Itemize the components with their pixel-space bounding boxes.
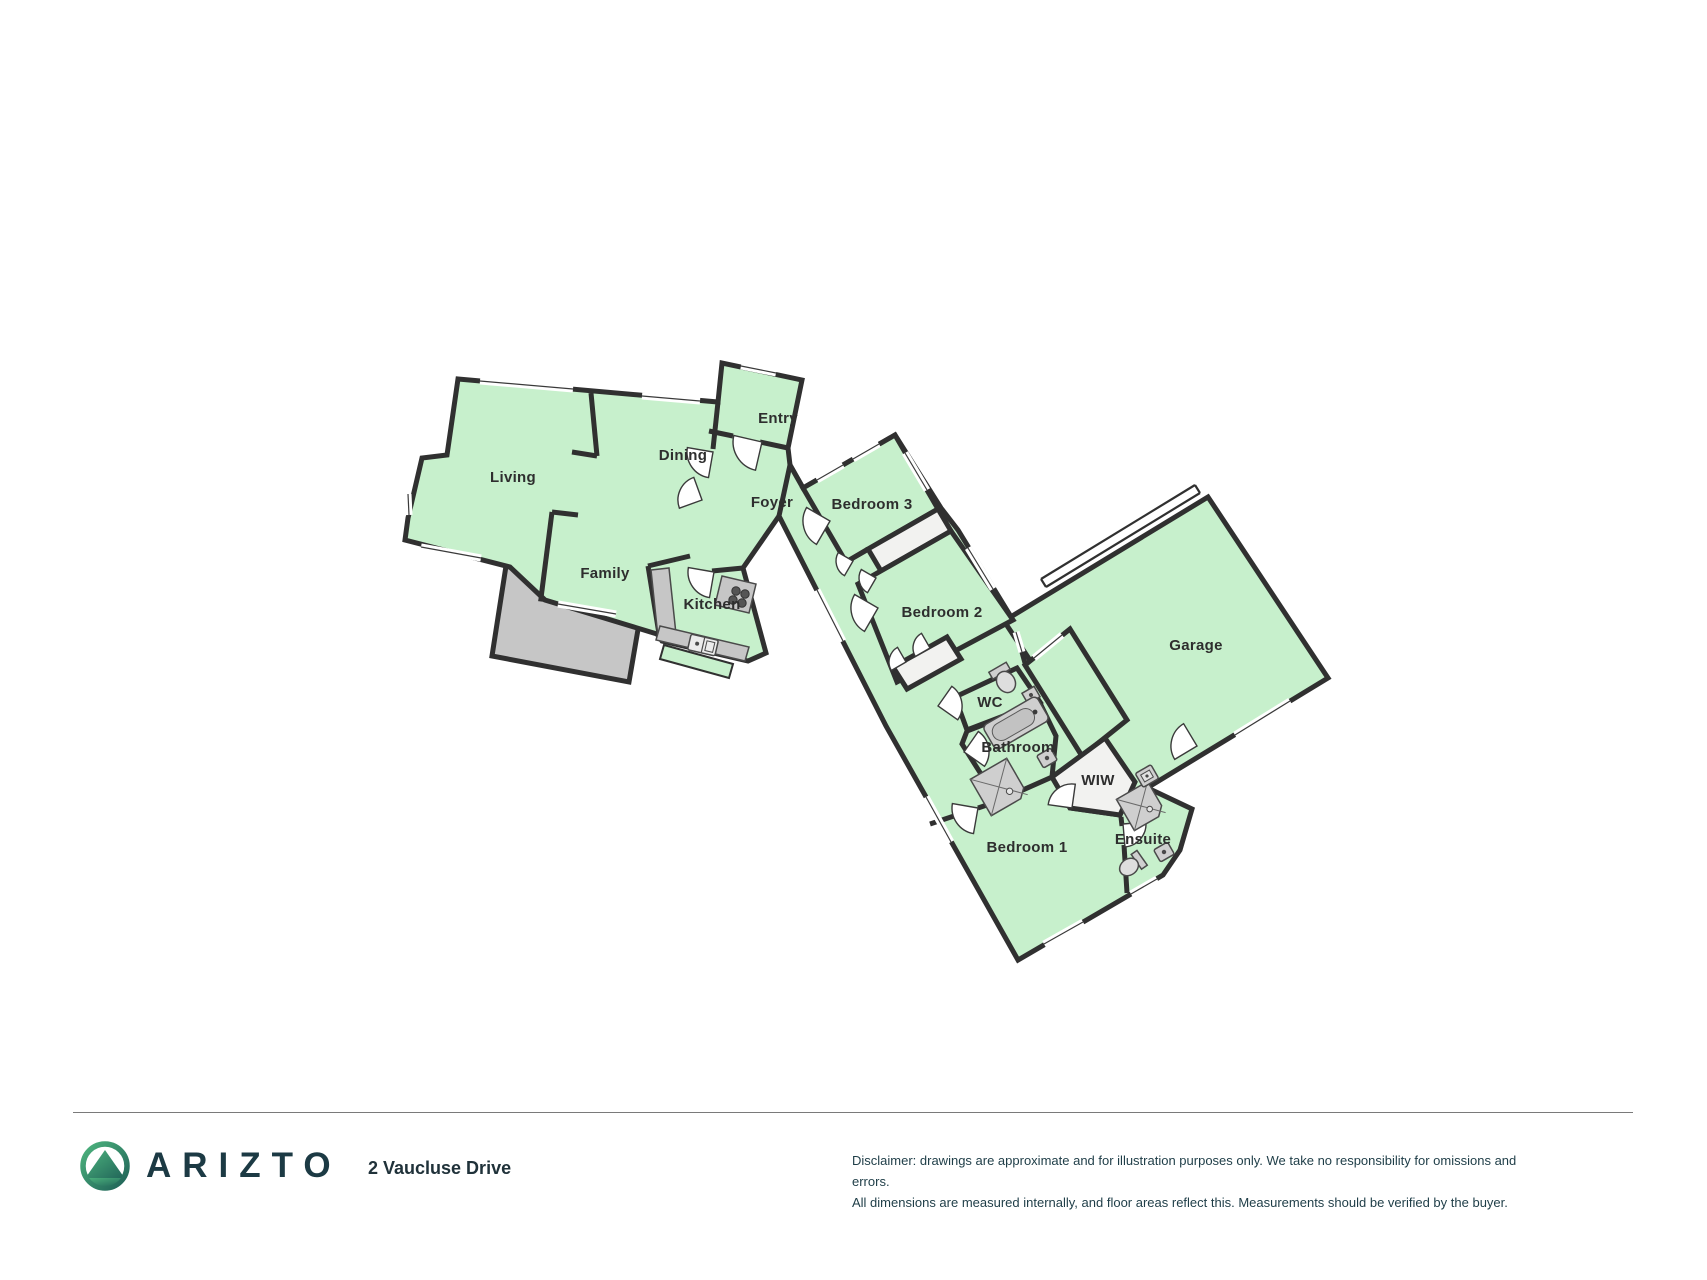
footer-divider xyxy=(73,1112,1633,1113)
room-label-bedroom2: Bedroom 2 xyxy=(901,604,982,621)
disclaimer-text: Disclaimer: drawings are approximate and… xyxy=(852,1150,1532,1213)
room-label-bathroom: Bathroom xyxy=(981,739,1054,756)
disclaimer-line-1: Disclaimer: drawings are approximate and… xyxy=(852,1150,1532,1192)
room-label-ensuite: Ensuite xyxy=(1115,831,1171,848)
living-wing-floor xyxy=(405,363,803,661)
room-label-living: Living xyxy=(490,469,536,486)
brand-name: ARIZTO xyxy=(146,1146,342,1186)
room-label-family: Family xyxy=(580,565,630,582)
floorplan-canvas: Living Dining Entry Foyer Family Kitchen… xyxy=(0,0,1707,1120)
room-label-kitchen: Kitchen xyxy=(683,596,740,613)
disclaimer-line-2: All dimensions are measured internally, … xyxy=(852,1192,1532,1213)
room-label-foyer: Foyer xyxy=(751,494,793,511)
floorplan-page: Living Dining Entry Foyer Family Kitchen… xyxy=(0,0,1707,1280)
room-label-bedroom3: Bedroom 3 xyxy=(831,496,912,513)
room-label-bedroom1: Bedroom 1 xyxy=(986,839,1067,856)
room-label-entry: Entry xyxy=(758,410,798,427)
room-label-garage: Garage xyxy=(1169,637,1223,654)
property-address: 2 Vaucluse Drive xyxy=(368,1158,511,1179)
room-label-wc: WC xyxy=(977,694,1003,711)
room-label-dining: Dining xyxy=(659,447,707,464)
room-label-wiw: WIW xyxy=(1081,772,1115,789)
brand-logo-icon xyxy=(76,1138,134,1196)
